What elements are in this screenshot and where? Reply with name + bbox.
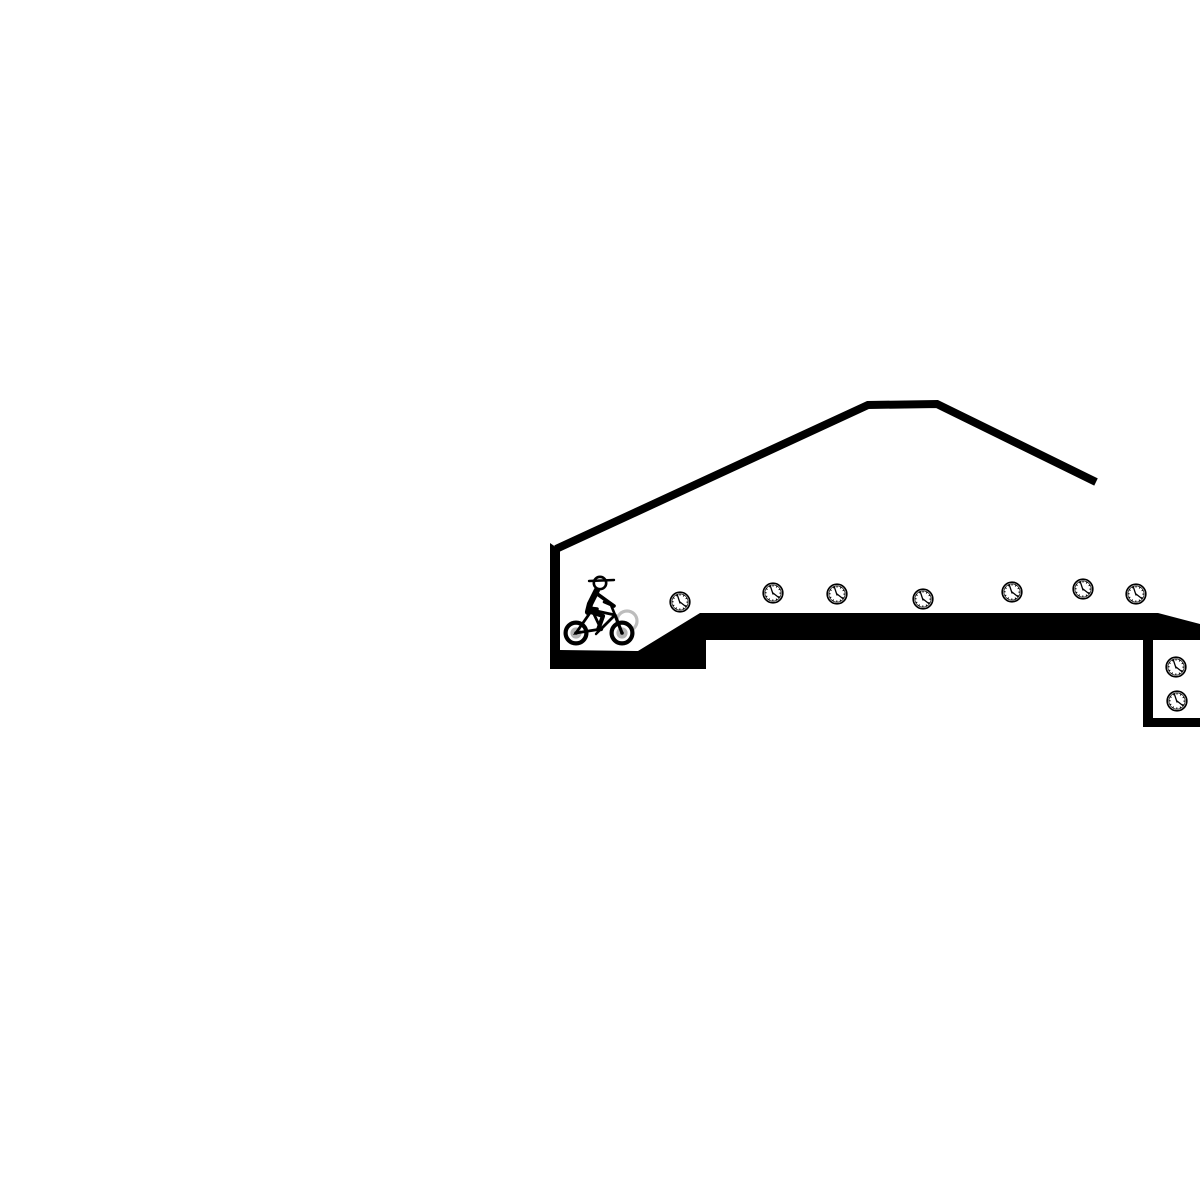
rider-cap	[589, 580, 614, 581]
clock-pickup-3	[827, 584, 847, 604]
clock-pickup-7	[1126, 584, 1146, 604]
clock-pickup-2	[763, 583, 783, 603]
clock-pickup-8	[1166, 657, 1186, 677]
clock-pickup-4	[913, 589, 933, 609]
rider-head	[594, 577, 606, 589]
clock-pickup-9	[1167, 691, 1187, 711]
bike-rider	[566, 577, 637, 644]
game-viewport[interactable]	[0, 0, 1200, 1200]
clock-pickups-layer	[670, 579, 1187, 711]
clock-pickup-1	[670, 592, 690, 612]
clock-pickup-6	[1073, 579, 1093, 599]
rider-arm	[596, 593, 614, 606]
clock-pickup-5	[1002, 582, 1022, 602]
roof-line	[556, 404, 1096, 549]
game-scene	[0, 0, 1200, 1200]
terrain-ground	[550, 543, 1200, 727]
